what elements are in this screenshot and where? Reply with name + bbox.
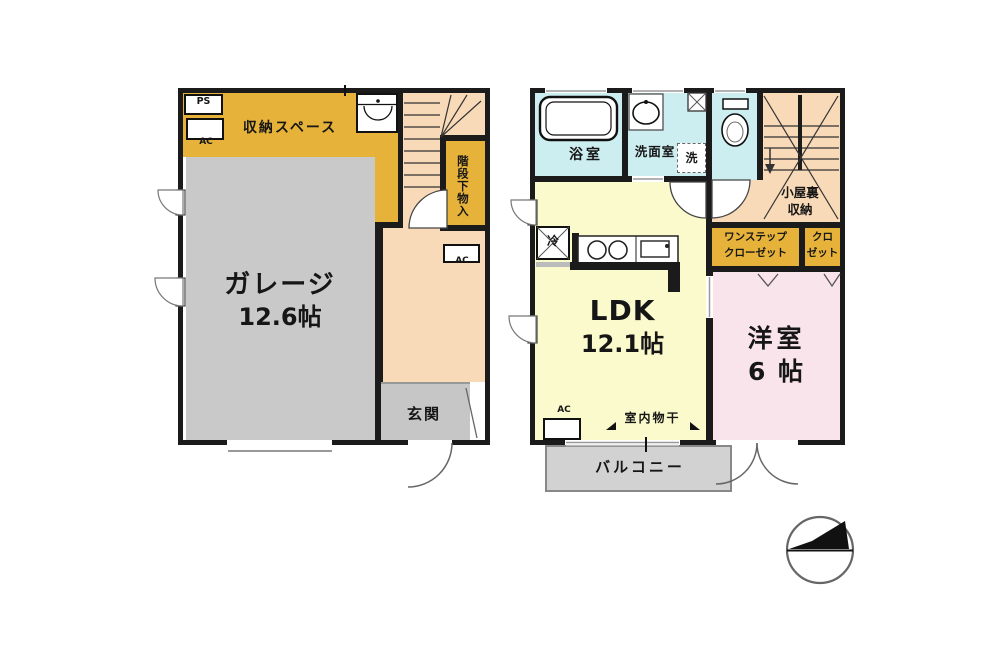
garage-label: ガレージ — [180, 271, 380, 300]
wall-storage-hall — [398, 93, 403, 228]
floor1-entrance-side — [470, 382, 485, 440]
closet-label-line2: ゼット — [806, 248, 839, 260]
attic-storage-label-line1: 小屋裏 — [765, 186, 835, 200]
ac-label-3: AC — [546, 405, 582, 415]
balcony-label: バルコニー — [560, 459, 720, 476]
floorplan-canvas: PS AC 収納スペース 階段下物入 AC ガレージ 12.6帖 玄関 浴室 洗… — [0, 0, 1000, 667]
ldk-size-label: 12.1帖 — [535, 331, 710, 358]
storage-space-label: 収納スペース — [225, 121, 355, 137]
floor2-toilet-floor — [712, 93, 757, 180]
floor2-bathroom-floor — [535, 93, 622, 180]
one-step-closet-label-line2: クローゼット — [714, 248, 797, 260]
western-room-size-label: 6 帖 — [713, 358, 840, 386]
ac-label-1: AC — [186, 137, 226, 147]
attic-storage-label-line2: 収納 — [765, 203, 835, 217]
refrigerator-label: 冷 — [539, 235, 567, 248]
ps-label: PS — [185, 97, 222, 108]
ldk-label: LDK — [535, 295, 710, 326]
indoor-drying-label: 室内物干 — [600, 412, 705, 425]
laundry-pan-label: 洗 — [677, 143, 706, 173]
garage-size-label: 12.6帖 — [180, 304, 380, 331]
one-step-closet-label-line1: ワンステップ — [714, 232, 797, 244]
bathroom-label: 浴室 — [551, 148, 621, 164]
western-room-label: 洋室 — [713, 325, 840, 353]
under-stair-storage-label: 階段下物入 — [456, 146, 469, 226]
closet-label-line1: クロ — [806, 232, 839, 244]
north-arrow-icon — [787, 517, 853, 583]
floor2-hall-floor — [712, 180, 763, 222]
floor2-western-room-floor — [713, 272, 840, 440]
floor2-outline — [530, 88, 845, 445]
plan-linework — [0, 0, 1000, 667]
ac-label-2: AC — [442, 256, 482, 266]
floor1-storage-floor-column — [375, 157, 398, 228]
wall-ldk-hall — [706, 180, 712, 222]
washroom-label: 洗面室 — [627, 145, 683, 159]
entrance-label: 玄関 — [394, 406, 454, 423]
